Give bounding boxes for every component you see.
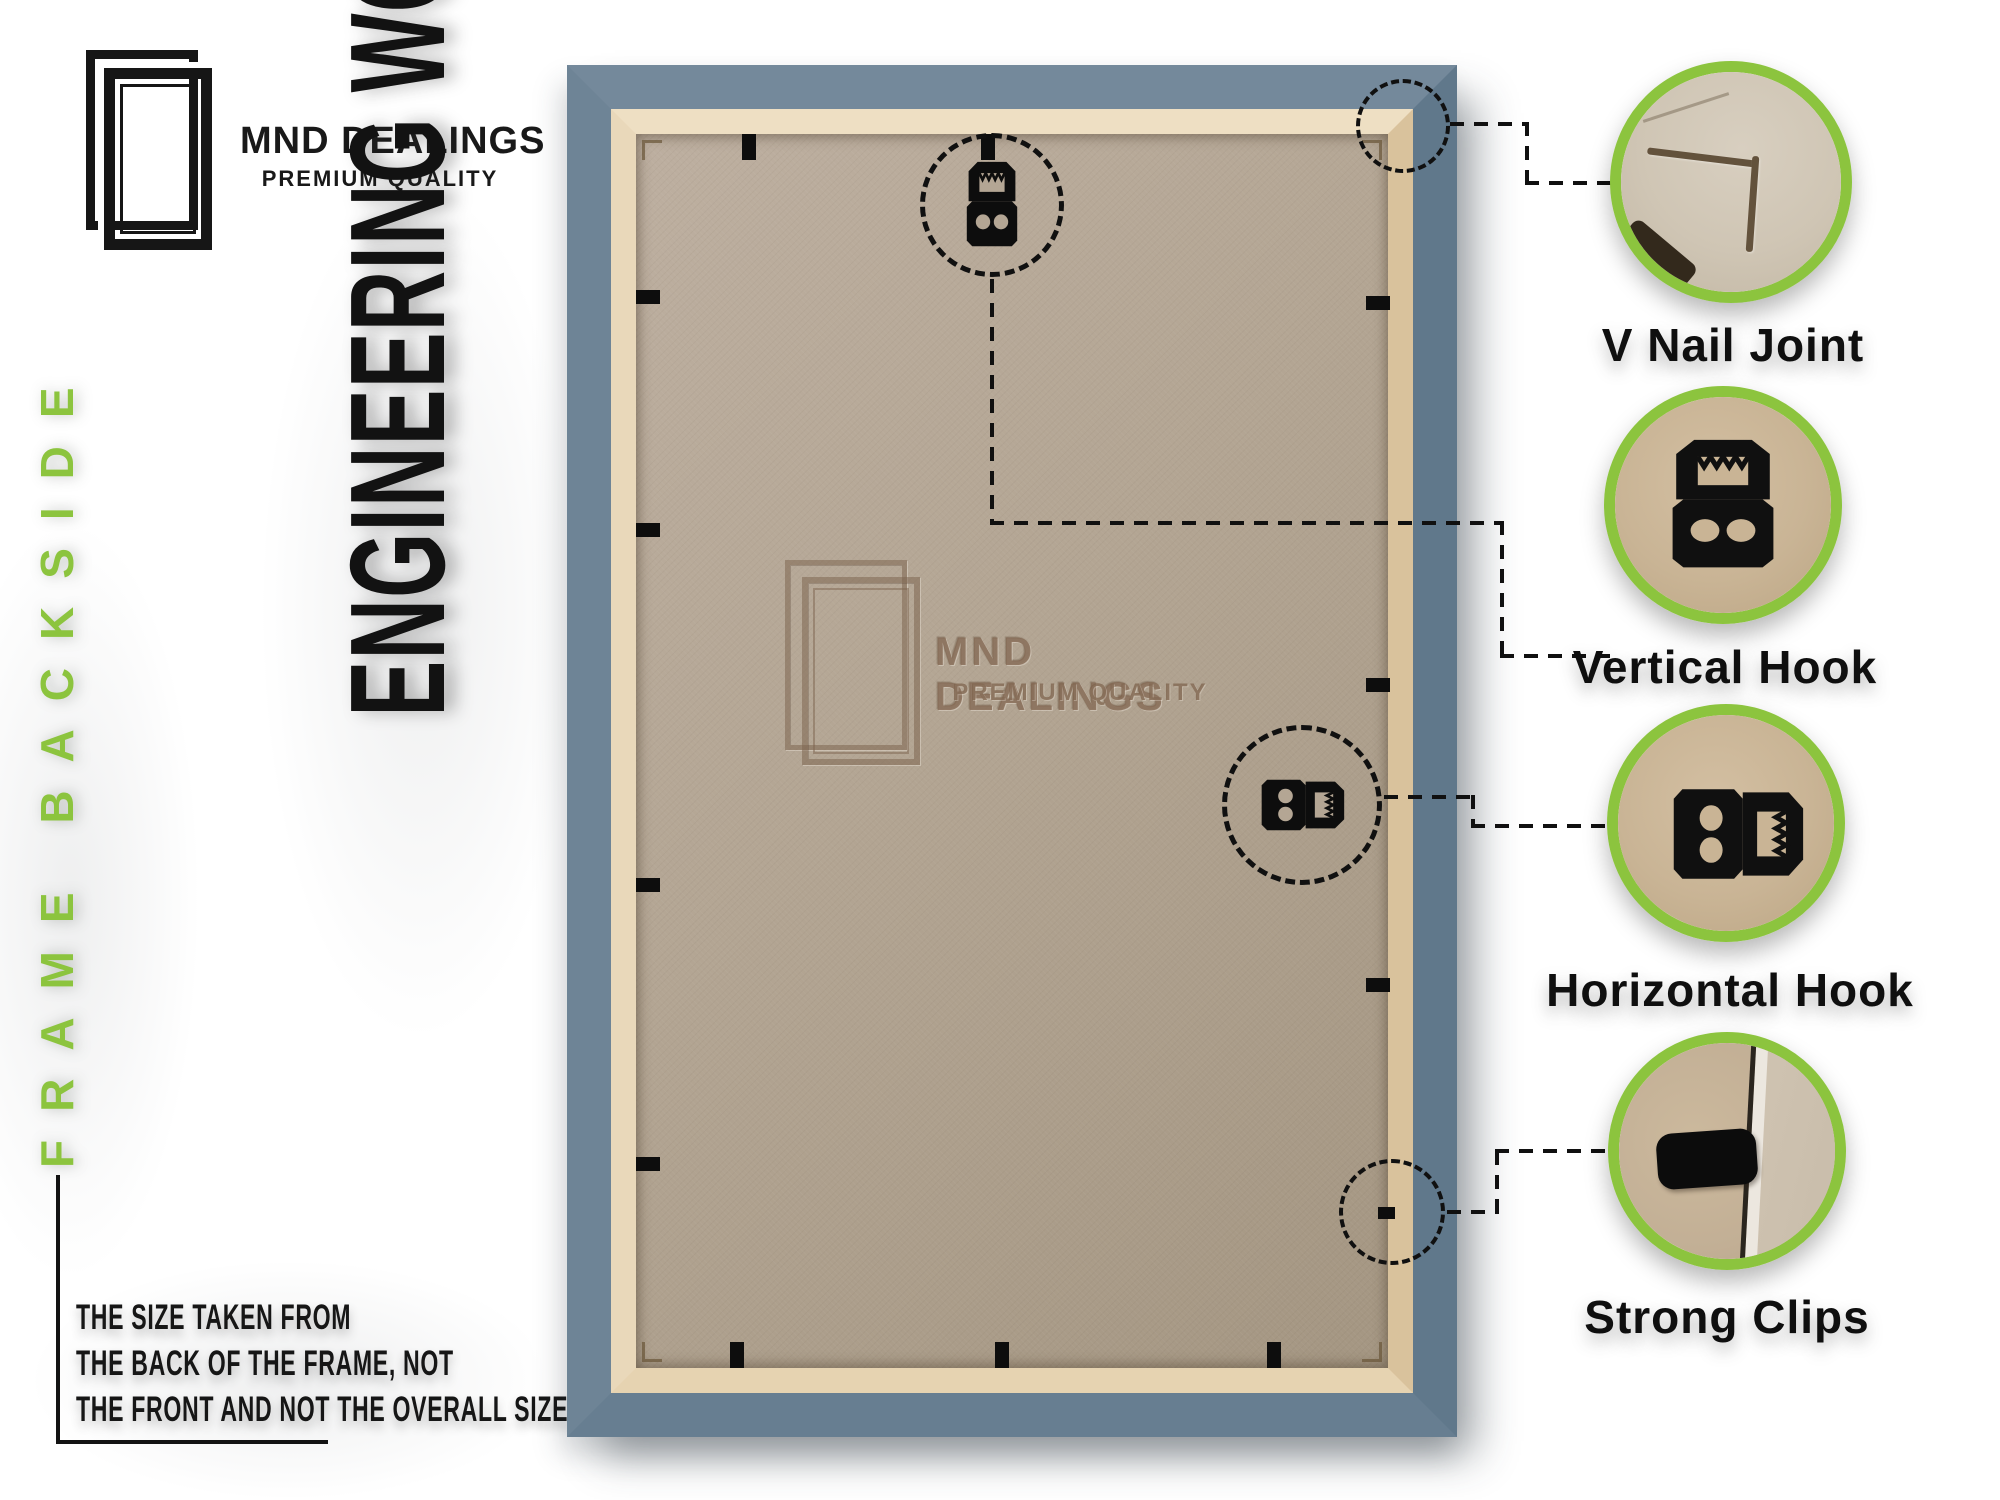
corner-shadow	[1610, 217, 1699, 303]
callout-connector	[1447, 1210, 1499, 1214]
clip-icon	[636, 290, 660, 304]
highlight-circle-corner	[1356, 79, 1450, 173]
v-nail-crack-line	[1643, 92, 1730, 123]
callout-connector	[1450, 122, 1529, 126]
callout-connector	[1500, 521, 1504, 658]
clip-icon	[1366, 978, 1390, 992]
v-nail-mark-icon	[642, 140, 662, 160]
product-graphic: MND DEALINGS PREMIUM QUALITY FRAME BACKS…	[0, 0, 2000, 1500]
clip-icon	[1366, 296, 1390, 310]
highlight-circle-vertical-hook	[920, 133, 1064, 277]
callout-connector	[1471, 824, 1609, 828]
vertical-hook-icon	[1669, 437, 1777, 573]
highlight-circle-horizontal-hook	[1222, 725, 1382, 885]
v-nail-groove	[1647, 147, 1757, 167]
engineering-wood-text: ENGINEERING WOOD	[332, 0, 464, 717]
watermark-inner-line	[813, 588, 909, 754]
clip-icon	[730, 1342, 744, 1368]
clip-icon	[636, 1157, 660, 1171]
clip-icon	[636, 878, 660, 892]
watermark-frames-icon	[802, 577, 920, 765]
callout-label-strong-clips: Strong Clips	[1557, 1290, 1897, 1344]
clip-icon	[636, 523, 660, 537]
callout-connector	[1495, 1151, 1499, 1214]
callout-connector	[1495, 1149, 1610, 1153]
frame-backside-label: FRAME BACKSIDE	[26, 398, 88, 1168]
note-rule-vertical	[56, 1175, 60, 1443]
clip-icon	[742, 134, 756, 160]
v-nail-mark-icon	[1362, 1342, 1382, 1362]
board-watermark: MND DEALINGS PREMIUM QUALITY	[785, 555, 1235, 765]
callout-circle-horizontal-hook	[1607, 704, 1845, 942]
callout-circle-v-nail-joint	[1610, 61, 1852, 303]
brand-logo-frames-icon	[104, 68, 212, 250]
engineering-wood-label: ENGINEERING WOOD	[332, 186, 464, 992]
size-note-line: THE SIZE TAKEN FROM	[76, 1298, 351, 1338]
callout-label-horizontal-hook: Horizontal Hook	[1530, 963, 1930, 1017]
callout-circle-strong-clips	[1608, 1032, 1846, 1270]
clip-icon	[1366, 678, 1390, 692]
callout-connector	[1384, 795, 1475, 799]
horizontal-hook-icon	[1668, 786, 1806, 882]
v-nail-mark-icon	[642, 1342, 662, 1362]
brand-logo-inner-line	[120, 84, 196, 234]
clip-icon	[995, 1342, 1009, 1368]
highlight-circle-strong-clip	[1339, 1159, 1445, 1265]
callout-label-v-nail-joint: V Nail Joint	[1563, 318, 1903, 372]
v-nail-photo	[1621, 72, 1841, 292]
size-note-line: THE BACK OF THE FRAME, NOT	[76, 1344, 454, 1384]
clip-icon	[1267, 1342, 1281, 1368]
callout-connector	[1525, 181, 1613, 185]
strong-clip-icon	[1655, 1128, 1759, 1191]
callout-circle-vertical-hook	[1604, 386, 1842, 624]
callout-connector	[990, 279, 994, 525]
v-nail-groove	[1746, 156, 1760, 252]
callout-connector	[1525, 122, 1529, 185]
watermark-tagline: PREMIUM QUALITY	[935, 679, 1225, 707]
callout-label-vertical-hook: Vertical Hook	[1545, 640, 1905, 694]
size-note-line: THE FRONT AND NOT THE OVERALL SIZE.	[76, 1390, 575, 1430]
callout-connector	[990, 521, 1504, 525]
note-rule-horizontal	[56, 1440, 328, 1444]
